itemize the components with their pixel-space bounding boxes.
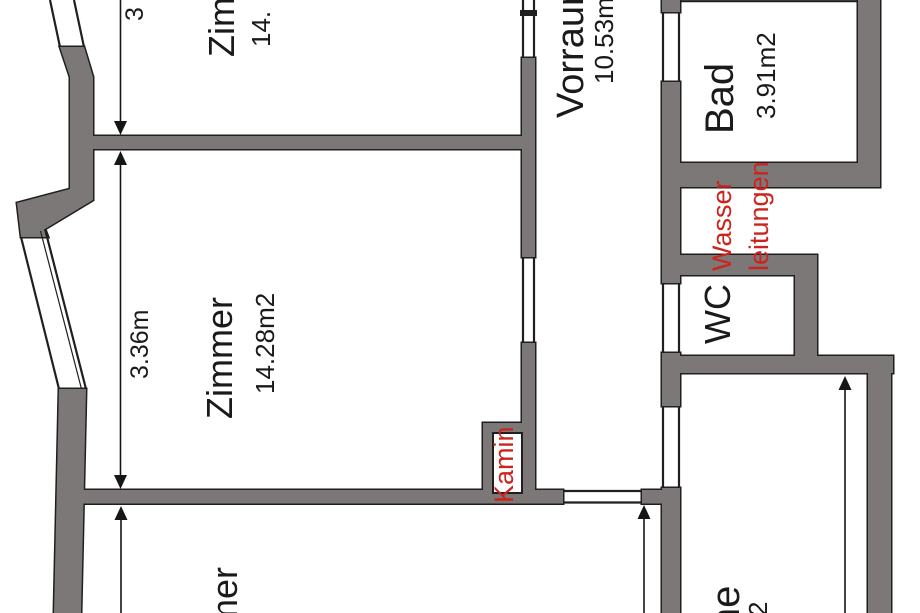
room-label-bad: Bad — [699, 60, 741, 134]
room-label-zimmer-mid: Zimmer — [201, 295, 249, 419]
window-icon-lower — [21, 229, 86, 389]
door-opening-kueche — [663, 406, 679, 488]
annotation-wasser: Wasser — [708, 176, 737, 271]
room-area-zimmer-top: 14. — [247, 3, 274, 47]
room-label-zimmer-top: Zimmer — [203, 0, 249, 57]
dimension-label-3: 3 — [122, 3, 149, 21]
window-icon-upper — [50, 0, 84, 47]
door-opening-zimmer-mid — [523, 257, 534, 343]
annotation-kamin: Kamin — [490, 424, 518, 503]
dimension-line-bottom-left-room — [115, 506, 128, 613]
dimension-line-bottom-middle — [638, 505, 651, 613]
room-area-vorraum: 10.53m2 — [590, 0, 618, 84]
room-label-wc: WC — [699, 282, 735, 344]
dimension-line-kueche — [839, 376, 852, 613]
door-opening-bottom-room — [563, 491, 642, 503]
room-area-zimmer-mid: 14.28m2 — [251, 292, 280, 394]
door-opening-bad — [663, 12, 679, 82]
room-label-zimmer-bottom: Zimmer — [206, 564, 252, 613]
room-area-bad: 3.91m2 — [752, 29, 780, 119]
dimension-label-3-36m: 3.36m — [127, 307, 156, 379]
door-opening-vorraum-top — [520, 0, 537, 58]
door-opening-wc — [663, 283, 679, 353]
room-area-kueche: 2 — [744, 600, 771, 613]
floorplan: Zimmer 14. Vorraum 10.53m2 Bad 3.91m2 Zi… — [0, 0, 920, 613]
annotation-leitungen: leitungen — [745, 159, 774, 271]
